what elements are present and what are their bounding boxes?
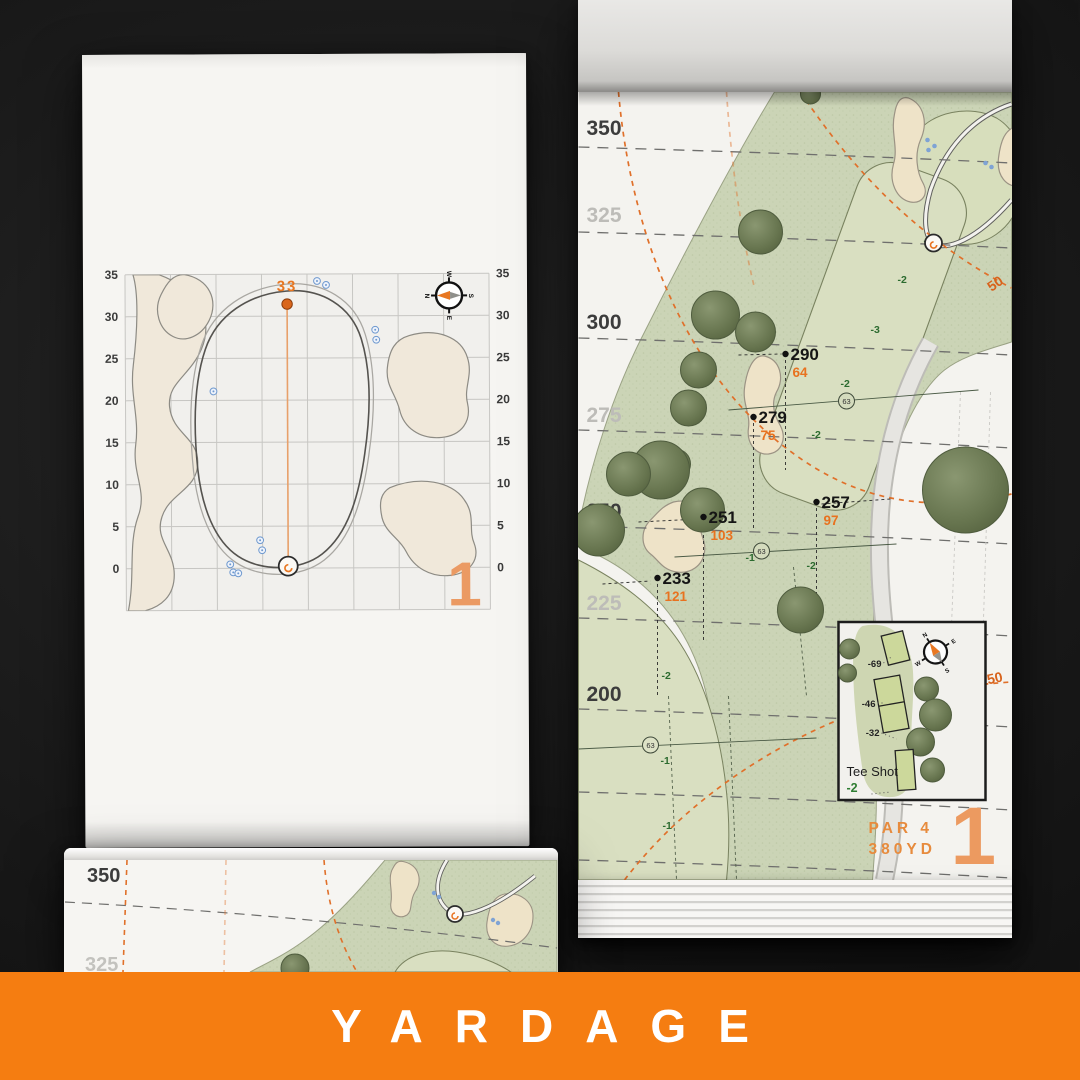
svg-text:30: 30 [105,310,119,324]
folded-page-flap [578,0,1012,93]
svg-text:233: 233 [663,569,691,588]
partial-hole-map: 350 325 [64,860,558,972]
svg-text:325: 325 [587,204,622,227]
svg-text:-3: -3 [871,324,880,336]
svg-text:-2: -2 [898,274,907,286]
svg-text:-2: -2 [807,560,816,572]
svg-text:5: 5 [497,518,504,532]
svg-text:15: 15 [497,434,511,448]
green-detail-page: 35 30 25 20 15 10 5 0 35 30 25 20 15 10 … [82,53,529,848]
hole-number: 1 [951,791,997,880]
pin-depth-value: 33 [277,278,298,295]
svg-text:20: 20 [105,394,119,408]
svg-text:0: 0 [113,562,120,576]
svg-text:10: 10 [497,476,511,490]
partial-hole-page: 350 325 [64,848,558,972]
distance-labels: 350 325 [85,865,120,972]
svg-text:63: 63 [842,397,850,406]
svg-text:W: W [445,271,452,278]
axis-labels-left: 35 30 25 20 15 10 5 0 [105,268,120,576]
tee-elevation: -2 [847,781,858,795]
page-stack-edge [578,880,1012,938]
banner-title: YARDAGE [299,999,781,1053]
svg-text:30: 30 [496,308,510,322]
par-label: PAR 4 [869,820,934,837]
svg-text:225: 225 [587,592,622,615]
svg-text:64: 64 [793,365,809,380]
svg-text:10: 10 [105,478,119,492]
svg-text:25: 25 [105,352,119,366]
svg-text:-46: -46 [862,699,876,710]
svg-text:325: 325 [85,954,118,972]
svg-text:N: N [423,294,430,299]
svg-text:35: 35 [105,268,119,282]
svg-text:0: 0 [497,560,504,574]
svg-text:S: S [467,294,474,299]
tee-shot-title: Tee Shot [847,764,899,779]
svg-text:35: 35 [496,266,510,280]
svg-text:300: 300 [587,311,622,334]
svg-text:257: 257 [822,493,850,512]
svg-text:121: 121 [665,589,688,604]
svg-text:63: 63 [646,741,654,750]
svg-text:-2: -2 [662,670,671,682]
hole-map-wrap: 350 325 300 275 250 225 200 50 100 150 [578,92,1012,880]
svg-text:-69: -69 [868,659,882,670]
svg-text:-1: -1 [663,820,672,832]
pin-marker-icon [925,235,942,252]
svg-text:290: 290 [791,345,819,364]
svg-text:279: 279 [759,408,787,427]
svg-text:-2: -2 [841,378,850,390]
hole-map-page: 350 325 300 275 250 225 200 50 100 150 [578,0,1012,938]
tee-shot-inset: -69 -46 -32 Tee Shot -2 N [839,621,986,800]
svg-text:-32: -32 [866,728,880,739]
green-detail-chart: 35 30 25 20 15 10 5 0 35 30 25 20 15 10 … [89,243,523,691]
axis-labels-right: 35 30 25 20 15 10 5 0 [496,266,511,574]
svg-text:275: 275 [587,404,622,427]
svg-text:350: 350 [587,117,622,140]
svg-text:63: 63 [757,547,765,556]
svg-text:-1: -1 [746,552,755,564]
flap-shadow [579,92,1012,106]
svg-text:97: 97 [824,513,839,528]
yardage-label: 380YD [869,841,936,858]
svg-text:5: 5 [112,520,119,534]
svg-text:25: 25 [496,350,510,364]
yardage-banner: YARDAGE [0,972,1080,1080]
hole-map: 350 325 300 275 250 225 200 50 100 150 [578,92,1012,880]
svg-text:350: 350 [87,865,120,887]
svg-text:-1: -1 [661,755,670,767]
svg-text:15: 15 [105,436,119,450]
hole-number: 1 [447,550,482,619]
svg-text:200: 200 [587,683,622,706]
pin-marker-icon [447,906,463,922]
svg-text:20: 20 [496,392,510,406]
svg-text:-2: -2 [812,429,821,441]
svg-text:E: E [445,316,452,321]
svg-text:103: 103 [711,528,734,543]
svg-text:251: 251 [709,508,737,527]
svg-text:75: 75 [761,428,777,443]
green-entry-icon [279,557,298,576]
